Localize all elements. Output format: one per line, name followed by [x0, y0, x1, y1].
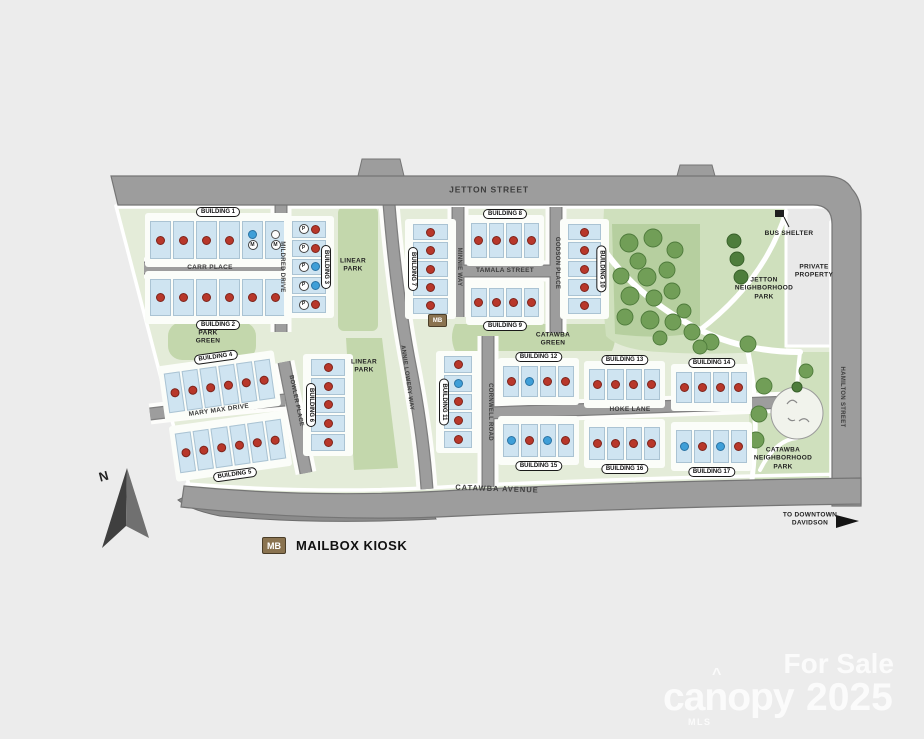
unit: [521, 424, 537, 457]
unit: [311, 378, 345, 395]
unit-status-dot: [561, 377, 570, 386]
unit-status-dot: [734, 442, 743, 451]
unit-status-dot: [426, 283, 435, 292]
unit-status-dot: [734, 383, 743, 392]
unit: [558, 424, 574, 457]
unit-status-dot: [543, 377, 552, 386]
legend: MB MAILBOX KIOSK: [262, 537, 407, 554]
unit: [558, 366, 574, 397]
unit-status-dot: [580, 246, 589, 255]
building-label: BUILDING 3: [321, 245, 331, 289]
building-label: BUILDING 2: [196, 320, 240, 330]
building-label: BUILDING 6: [306, 383, 316, 427]
unit: [626, 427, 642, 460]
unit-status-dot: [698, 383, 707, 392]
unit: [589, 369, 605, 400]
unit: [503, 424, 519, 457]
unit-status-dot: [311, 262, 320, 271]
unit-status-dot: [169, 387, 179, 397]
unit-status-dot: [680, 442, 689, 451]
mailbox-kiosk-marker: MB: [428, 314, 447, 327]
unit-status-dot: [647, 380, 656, 389]
unit: [311, 397, 345, 414]
building-15: BUILDING 15: [503, 424, 574, 457]
building-label: BUILDING 7: [408, 247, 418, 291]
unit-status-dot: [454, 379, 463, 388]
unit: [731, 430, 747, 463]
unit: [173, 279, 194, 316]
unit-status-dot: [252, 437, 262, 447]
unit: [540, 366, 556, 397]
unit: [196, 221, 217, 259]
unit: [489, 288, 505, 317]
unit: [524, 288, 540, 317]
unit-status-dot: [205, 382, 215, 392]
unit-status-dot: [509, 298, 518, 307]
unit-status-dot: [580, 283, 589, 292]
unit-status-dot: [561, 436, 570, 445]
unit: [524, 223, 540, 258]
unit: [503, 366, 519, 397]
unit-status-dot: [324, 363, 333, 372]
unit-status-dot: [525, 377, 534, 386]
unit: [219, 279, 240, 316]
unit-status-dot: [216, 442, 226, 452]
building-12: BUILDING 12: [503, 366, 574, 397]
unit: [413, 279, 448, 295]
unit-status-dot: [580, 301, 589, 310]
unit-status-dot: [324, 419, 333, 428]
building-label: BUILDING 16: [601, 464, 648, 474]
unit: [471, 288, 487, 317]
building-4: BUILDING 4: [164, 359, 276, 414]
building-17: BUILDING 17: [676, 430, 747, 463]
unit: [444, 356, 472, 373]
building-label: BUILDING 11: [439, 378, 449, 425]
unit: P: [292, 296, 326, 313]
unit-status-dot: [474, 236, 483, 245]
unit-status-dot: [629, 380, 638, 389]
north-arrow-icon: [102, 468, 149, 548]
unit-status-dot: [311, 281, 320, 290]
unit: [265, 279, 286, 316]
building-label: BUILDING 9: [483, 321, 527, 331]
unit: [644, 427, 660, 460]
parking-badge: P: [299, 243, 309, 253]
unit-status-dot: [611, 380, 620, 389]
unit-status-dot: [248, 230, 257, 239]
unit-status-dot: [454, 360, 463, 369]
building-label: BUILDING 13: [601, 355, 648, 365]
unit: [676, 372, 692, 403]
model-badge: M: [271, 240, 281, 250]
unit: [413, 298, 448, 314]
unit-status-dot: [198, 445, 208, 455]
unit: [413, 242, 448, 258]
unit-status-dot: [580, 265, 589, 274]
building-9: BUILDING 9: [471, 288, 539, 317]
unit-status-dot: [180, 447, 190, 457]
unit: [506, 223, 522, 258]
unit: [644, 369, 660, 400]
unit: [713, 430, 729, 463]
unit: [196, 279, 217, 316]
unit-status-dot: [492, 236, 501, 245]
unit: [173, 221, 194, 259]
unit: [731, 372, 747, 403]
unit: [568, 298, 601, 314]
unit-status-dot: [248, 293, 257, 302]
unit: [311, 415, 345, 432]
unit-status-dot: [492, 298, 501, 307]
building-label: BUILDING 8: [483, 209, 527, 219]
unit-status-dot: [507, 436, 516, 445]
unit-status-dot: [202, 236, 211, 245]
unit-status-dot: [270, 435, 280, 445]
unit-status-dot: [474, 298, 483, 307]
unit-status-dot: [426, 228, 435, 237]
unit-status-dot: [179, 236, 188, 245]
unit-status-dot: [527, 298, 536, 307]
unit-status-dot: [716, 442, 725, 451]
unit-status-dot: [680, 383, 689, 392]
downtown-arrow-icon: [836, 515, 859, 528]
unit-status-dot: [716, 383, 725, 392]
unit-status-dot: [311, 225, 320, 234]
building-14: BUILDING 14: [676, 372, 747, 403]
unit: P: [292, 221, 326, 238]
unit: [626, 369, 642, 400]
unit: [607, 369, 623, 400]
site-plan-map: MMBUILDING 1BUILDING 2PPPPPBUILDING 3BUI…: [0, 0, 924, 739]
unit-status-dot: [324, 400, 333, 409]
unit-status-dot: [543, 436, 552, 445]
unit-status-dot: [324, 438, 333, 447]
unit: [489, 223, 505, 258]
unit-status-dot: [156, 293, 165, 302]
building-8: BUILDING 8: [471, 223, 539, 258]
unit-status-dot: [234, 440, 244, 450]
unit-status-dot: [593, 380, 602, 389]
unit-status-dot: [527, 236, 536, 245]
unit-status-dot: [454, 397, 463, 406]
unit-status-dot: [179, 293, 188, 302]
unit: [444, 431, 472, 448]
building-5: BUILDING 5: [175, 419, 287, 474]
unit-status-dot: [611, 439, 620, 448]
unit-status-dot: [202, 293, 211, 302]
unit-status-dot: [509, 236, 518, 245]
unit: [568, 224, 601, 240]
unit-status-dot: [225, 236, 234, 245]
unit: M: [265, 221, 286, 259]
unit: [311, 359, 345, 376]
unit-status-dot: [187, 385, 197, 395]
legend-mb-badge: MB: [262, 537, 286, 554]
unit-status-dot: [698, 442, 707, 451]
unit: [676, 430, 692, 463]
parking-badge: P: [299, 300, 309, 310]
unit-status-dot: [580, 228, 589, 237]
building-label: BUILDING 14: [688, 358, 735, 368]
unit: M: [242, 221, 263, 259]
unit: [413, 224, 448, 240]
unit-status-dot: [454, 416, 463, 425]
unit: [694, 372, 710, 403]
unit-status-dot: [324, 382, 333, 391]
building-label: BUILDING 17: [688, 467, 735, 477]
unit: [311, 434, 345, 451]
building-10: BUILDING 10: [568, 224, 601, 314]
unit-status-dot: [629, 439, 638, 448]
unit: [506, 288, 522, 317]
unit-status-dot: [223, 380, 233, 390]
building-label: BUILDING 12: [515, 352, 562, 362]
unit: [713, 372, 729, 403]
building-label: BUILDING 15: [515, 461, 562, 471]
building-label: BUILDING 10: [596, 245, 606, 292]
unit: [242, 279, 263, 316]
building-11: BUILDING 11: [444, 356, 472, 448]
unit-status-dot: [593, 439, 602, 448]
unit-status-dot: [156, 236, 165, 245]
unit-status-dot: [454, 435, 463, 444]
parking-badge: P: [299, 262, 309, 272]
private-property-area: [786, 207, 833, 346]
unit: [540, 424, 556, 457]
building-6: BUILDING 6: [311, 359, 345, 451]
unit: [219, 221, 240, 259]
unit-status-dot: [426, 246, 435, 255]
unit-status-dot: [241, 377, 251, 387]
building-16: BUILDING 16: [589, 427, 660, 460]
parking-badge: P: [299, 281, 309, 291]
building-7: BUILDING 7: [413, 224, 448, 314]
unit-status-dot: [311, 300, 320, 309]
model-badge: M: [248, 240, 258, 250]
unit-status-dot: [271, 293, 280, 302]
unit-status-dot: [525, 436, 534, 445]
unit-status-dot: [426, 265, 435, 274]
unit: [607, 427, 623, 460]
unit-status-dot: [259, 375, 269, 385]
unit: [471, 223, 487, 258]
unit-status-dot: [271, 230, 280, 239]
parking-badge: P: [299, 224, 309, 234]
unit-status-dot: [311, 244, 320, 253]
unit-status-dot: [647, 439, 656, 448]
unit: [150, 279, 171, 316]
building-3: PPPPPBUILDING 3: [292, 221, 326, 313]
building-13: BUILDING 13: [589, 369, 660, 400]
building-label: BUILDING 1: [196, 207, 240, 217]
unit: [694, 430, 710, 463]
unit-status-dot: [225, 293, 234, 302]
building-2: BUILDING 2: [150, 279, 286, 316]
legend-mailbox-label: MAILBOX KIOSK: [296, 538, 407, 553]
unit-status-dot: [426, 301, 435, 310]
unit: [521, 366, 537, 397]
building-1: MMBUILDING 1: [150, 221, 286, 259]
unit-status-dot: [507, 377, 516, 386]
unit: [413, 261, 448, 277]
unit: [589, 427, 605, 460]
unit: [150, 221, 171, 259]
